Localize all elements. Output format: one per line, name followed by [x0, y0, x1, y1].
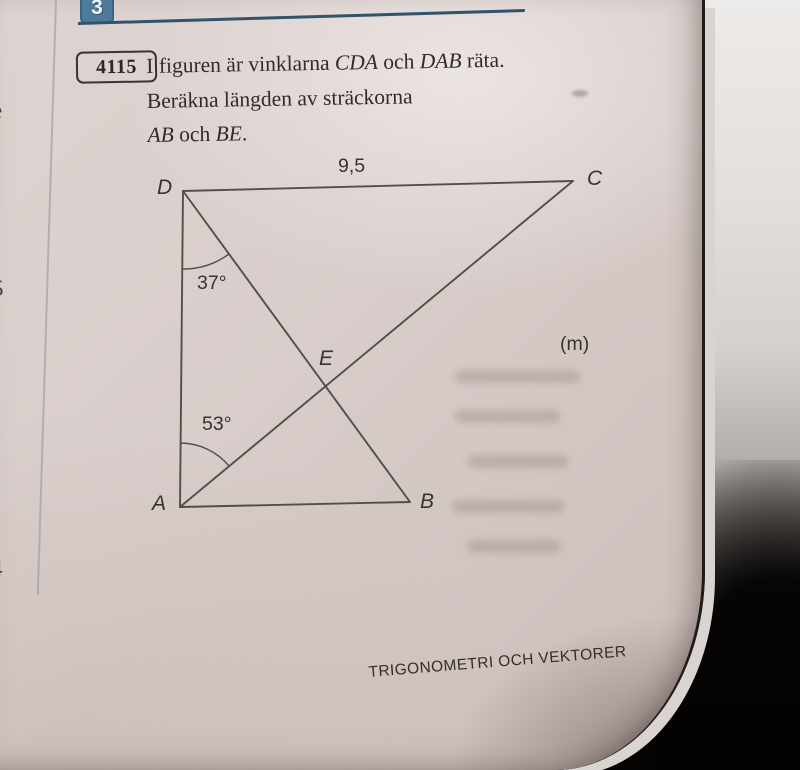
line-da — [180, 191, 183, 507]
line-ab — [180, 502, 410, 507]
show-through-smudge — [452, 500, 564, 513]
arc-angle-a — [181, 443, 229, 466]
show-through-smudge — [468, 455, 568, 468]
point-label-b: B — [420, 490, 434, 514]
angle-label-37: 37° — [197, 272, 227, 295]
show-through-smudge — [455, 410, 560, 423]
angle-label-53: 53° — [202, 413, 232, 436]
line-dc — [183, 181, 573, 191]
textbook-page: e 5 4 3 4115 I figuren är vinklarna CDA … — [0, 0, 705, 770]
show-through-smudge — [455, 370, 580, 383]
book-photo: e 5 4 3 4115 I figuren är vinklarna CDA … — [0, 0, 800, 770]
length-label-dc: 9,5 — [338, 155, 365, 178]
unit-label: (m) — [560, 333, 589, 356]
paper-smudge — [572, 90, 588, 97]
point-label-e: E — [319, 347, 333, 371]
point-label-d: D — [157, 176, 172, 200]
arc-angle-d — [182, 254, 229, 269]
show-through-smudge — [468, 540, 560, 553]
point-label-c: C — [587, 167, 602, 191]
point-label-a: A — [152, 492, 166, 516]
